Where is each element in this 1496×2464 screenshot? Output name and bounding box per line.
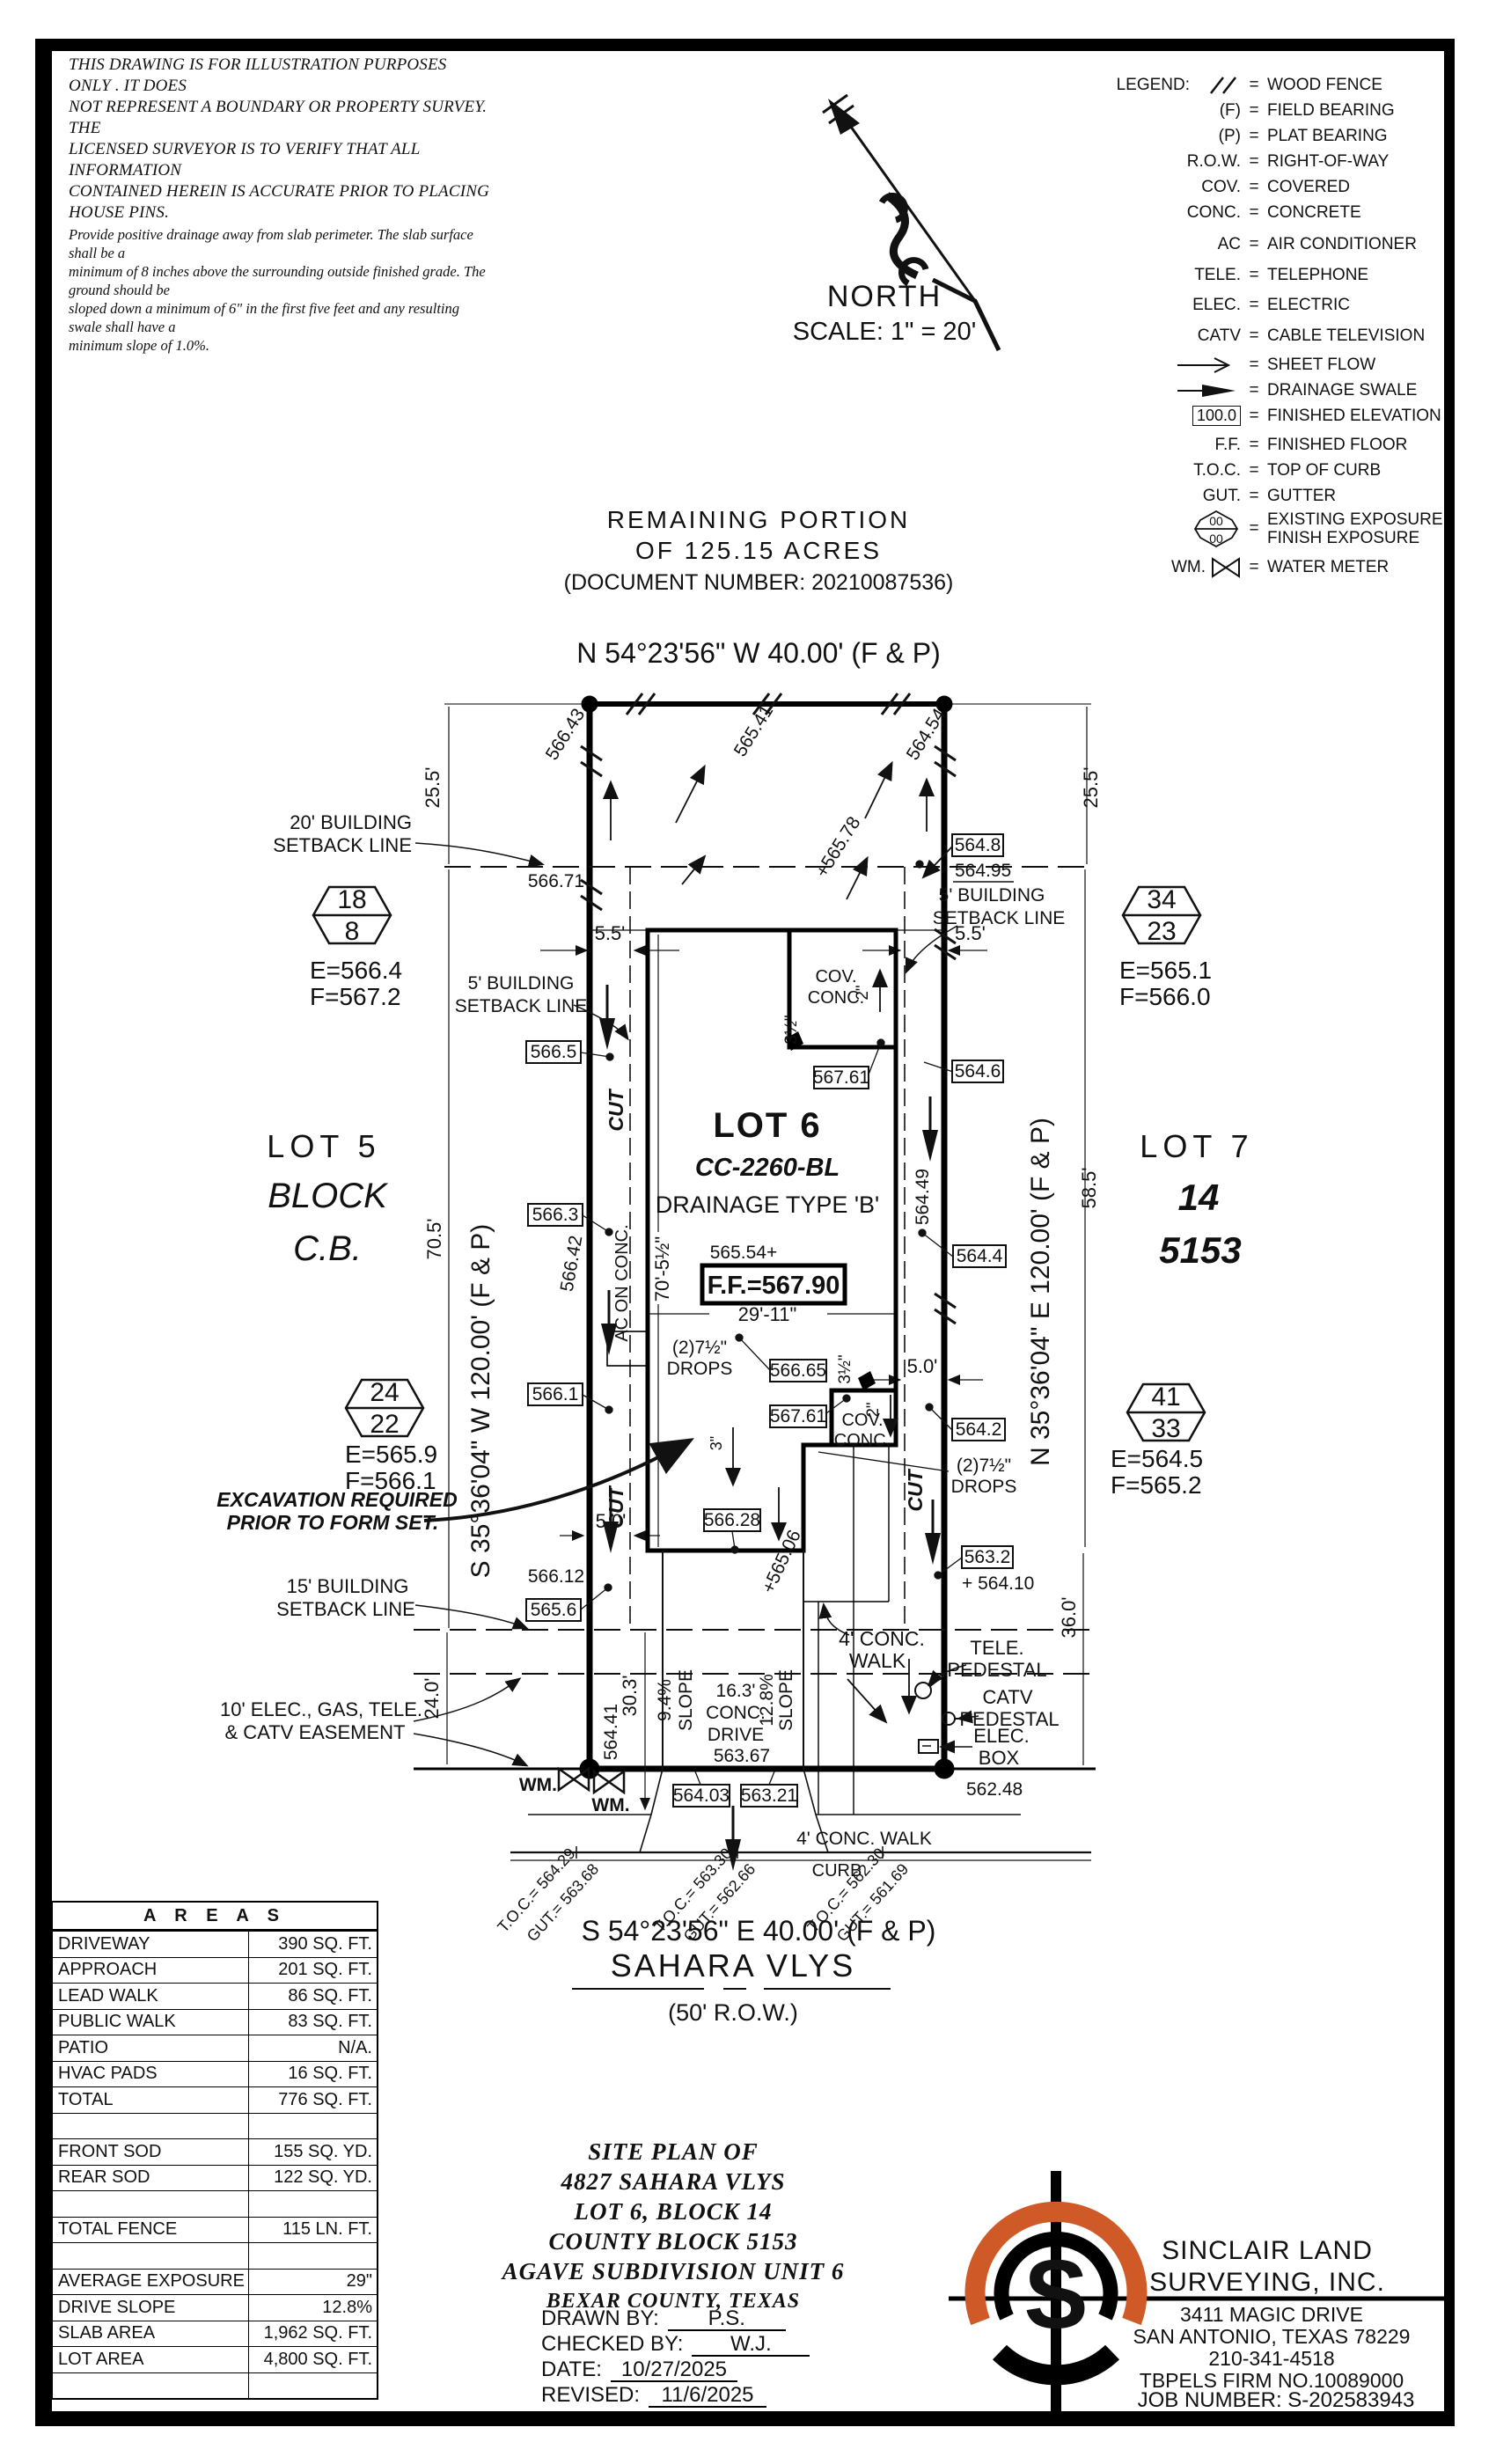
svg-text:41: 41 [1151,1382,1180,1412]
legend-symbol: ELEC. [1093,296,1241,315]
svg-text:SLOPE: SLOPE [776,1669,796,1731]
table-row: SLAB AREA1,962 SQ. FT. [53,2321,377,2347]
svg-text:566.42: 566.42 [557,1234,587,1293]
svg-text:566.43: 566.43 [542,705,590,764]
svg-text:DRIVE: DRIVE [708,1725,764,1745]
legend-symbol: (P) [1093,127,1241,146]
svg-text:33: 33 [1151,1414,1180,1443]
title-line: SITE PLAN OF [480,2137,867,2167]
title-block: SITE PLAN OF 4827 SAHARA VLYS LOT 6, BLO… [480,2137,867,2316]
svg-text:12.8%: 12.8% [757,1674,777,1727]
svg-text:PEDESTAL: PEDESTAL [947,1659,1046,1681]
table-row: TOTAL FENCE115 LN. FT. [53,2217,377,2243]
svg-text:564.8: 564.8 [955,835,1001,855]
svg-text:70.5': 70.5' [423,1218,445,1259]
street-name: SAHARA VLYS [611,1947,855,1984]
legend-symbol: WM. [1171,558,1206,577]
drawn-by-row: DRAWN BY:P.S. [541,2306,893,2331]
svg-text:9.4%: 9.4% [655,1679,675,1721]
exposure-hex-icon: 00 00 [1192,510,1241,548]
svg-text:3½": 3½" [782,1015,801,1044]
legend-symbol: (F) [1093,101,1241,121]
legend-label: FINISHED ELEVATION [1267,407,1441,426]
legend-title: LEGEND: [1117,76,1190,95]
svg-text:566.5: 566.5 [531,1042,577,1062]
table-row [53,2372,377,2399]
table-row: LEAD WALK86 SQ. FT. [53,1983,377,2009]
legend-symbol: GUT. [1093,487,1241,506]
svg-text:SETBACK LINE: SETBACK LINE [276,1598,415,1620]
svg-text:565.54+: 565.54+ [710,1243,778,1263]
table-row: TOTAL776 SQ. FT. [53,2086,377,2113]
svg-text:563.2: 563.2 [964,1547,1011,1567]
svg-text:BLOCK: BLOCK [268,1177,389,1215]
site-plan-sheet: NORTH SCALE: 1" = 20' REMAINING PORTION … [0,0,1496,2464]
svg-text:4' CONC.: 4' CONC. [839,1627,925,1650]
svg-text:TELE.: TELE. [970,1637,1023,1659]
sinclair-logo-icon: S [975,2171,1137,2416]
svg-text:& CATV EASEMENT: & CATV EASEMENT [225,1721,406,1743]
svg-text:15' BUILDING: 15' BUILDING [287,1575,409,1597]
title-line: LOT 6, BLOCK 14 [480,2196,867,2226]
svg-text:564.03: 564.03 [673,1786,730,1806]
legend-label: RIGHT-OF-WAY [1267,152,1389,172]
svg-text:567.61: 567.61 [770,1406,826,1426]
legend-symbol: COV. [1093,178,1241,197]
svg-text:E=566.4: E=566.4 [310,957,402,984]
sheet-flow-icon [1176,356,1241,374]
disclaimer-line: LICENSED SURVEYOR IS TO VERIFY THAT ALL … [69,139,491,181]
svg-text:5' BUILDING: 5' BUILDING [939,885,1045,906]
svg-text:F=567.2: F=567.2 [310,983,401,1010]
legend-label: COVERED [1267,178,1350,197]
svg-text:3": 3" [708,1436,725,1450]
svg-text:SETBACK LINE: SETBACK LINE [455,996,588,1016]
svg-text:CUT: CUT [904,1468,927,1511]
svg-text:(2)7½": (2)7½" [957,1456,1011,1476]
legend-label: FINISH EXPOSURE [1267,529,1443,547]
svg-text:COV.: COV. [815,967,856,986]
svg-text:AC ON CONC.: AC ON CONC. [612,1224,632,1341]
legend-label: ELECTRIC [1267,296,1350,315]
svg-text:564.2: 564.2 [956,1419,1002,1440]
bottom-bearing: S 54°23'56" E 40.00' (F & P) [582,1915,936,1947]
svg-text:OF 125.15 ACRES: OF 125.15 ACRES [635,537,882,564]
legend-label: GUTTER [1267,487,1336,506]
svg-text:30.3': 30.3' [619,1675,641,1716]
svg-text:565.41: 565.41 [730,701,778,760]
table-row [53,2242,377,2269]
svg-text:C.B.: C.B. [293,1229,362,1268]
north-label: NORTH [827,280,942,313]
svg-text:566.12: 566.12 [528,1566,584,1587]
water-meter-icon [1211,557,1241,578]
legend-symbol: R.O.W. [1093,152,1241,172]
svg-text:70'-5½": 70'-5½" [651,1236,673,1302]
svg-text:3½": 3½" [836,1354,854,1383]
top-bearing: N 54°23'56" W 40.00' (F & P) [576,637,940,669]
lot-labels: LOT 5 BLOCK C.B. LOT 7 14 5153 LOT 6 CC-… [267,1106,1253,1303]
disclaimer-line: NOT REPRESENT A BOUNDARY OR PROPERTY SUR… [69,97,491,139]
svg-text:DROPS: DROPS [667,1359,733,1379]
svg-text:4' CONC. WALK: 4' CONC. WALK [796,1829,932,1849]
svg-text:CATV: CATV [982,1686,1032,1708]
wood-fence-icon [1204,76,1241,95]
disclaimer-note: THIS DRAWING IS FOR ILLUSTRATION PURPOSE… [69,55,491,355]
drainage-note-line: minimum slope of 1.0%. [69,336,491,355]
svg-text:S: S [1023,2240,1088,2349]
legend-symbol: CATV [1093,326,1241,346]
svg-text:24.0': 24.0' [421,1677,443,1719]
firm-name: SINCLAIR LAND SURVEYING, INC. [1135,2235,1399,2299]
svg-text:565.6: 565.6 [531,1600,577,1620]
svg-text:F=565.2: F=565.2 [1111,1471,1202,1499]
svg-text:566.3: 566.3 [532,1205,579,1225]
svg-text:00: 00 [1209,514,1223,528]
setback-labels: 20' BUILDING SETBACK LINE 5' BUILDING SE… [220,811,1065,1765]
legend-label: WATER METER [1267,558,1389,577]
date-row: DATE:10/27/2025 [541,2357,893,2382]
disclaimer-line: THIS DRAWING IS FOR ILLUSTRATION PURPOSE… [69,55,491,97]
svg-text:CONC.: CONC. [834,1431,891,1450]
toc-gut-labels: T.O.C.= 564.29 GUT.= 563.68 T.O.C.= 563.… [494,1844,912,1945]
disclaimer-line: CONTAINED HEREIN IS ACCURATE PRIOR TO PL… [69,181,491,224]
legend-symbol: F.F. [1093,436,1241,455]
svg-text:5.0': 5.0' [907,1355,938,1377]
legend-label: CONCRETE [1267,203,1361,223]
svg-text:18: 18 [337,885,366,914]
title-line: 4827 SAHARA VLYS [480,2167,867,2196]
svg-text:+565.78: +565.78 [811,813,864,881]
right-bearing: N 35°36'04" E 120.00' (F & P) [1026,1118,1055,1466]
svg-text:WM.: WM. [591,1795,629,1815]
left-bearing: S 35°36'04" W 120.00' (F & P) [466,1224,495,1579]
svg-text:567.61: 567.61 [813,1067,869,1088]
legend-label: DRAINAGE SWALE [1267,381,1417,400]
legend-symbol: TELE. [1093,266,1241,285]
svg-text:23: 23 [1147,917,1176,946]
svg-text:WM.: WM. [519,1775,557,1795]
job-number: JOB NUMBER: S-202583943 [1126,2388,1426,2413]
table-row: DRIVE SLOPE12.8% [53,2294,377,2321]
svg-text:ELEC.: ELEC. [973,1725,1030,1747]
table-row: APPROACH201 SQ. FT. [53,1957,377,1984]
svg-text:2": 2" [864,1402,883,1417]
table-row [53,2113,377,2139]
legend-symbol: AC [1093,235,1241,254]
areas-table: A R E A S DRIVEWAY390 SQ. FT. APPROACH20… [51,1901,378,2400]
svg-text:5.5': 5.5' [595,922,626,944]
legend-label: SHEET FLOW [1267,356,1375,375]
svg-text:566.28: 566.28 [704,1510,760,1530]
svg-text:5' BUILDING: 5' BUILDING [468,973,575,994]
svg-text:2": 2" [854,985,872,1000]
table-row: AVERAGE EXPOSURE29" [53,2269,377,2295]
svg-text:E=565.9: E=565.9 [345,1441,437,1468]
areas-table-title: A R E A S [53,1903,377,1931]
table-row: PATION/A. [53,2035,377,2061]
legend-label: WOOD FENCE [1267,76,1382,95]
table-row: PUBLIC WALK83 SQ. FT. [53,2009,377,2035]
drainage-swale-icon [1176,382,1241,400]
revised-row: REVISED:11/6/2025 [541,2382,893,2408]
svg-text:SETBACK LINE: SETBACK LINE [273,834,412,856]
svg-text:PRIOR TO FORM SET.: PRIOR TO FORM SET. [227,1511,439,1534]
drainage-note-line: sloped down a minimum of 6" in the first… [69,299,491,336]
table-row: FRONT SOD155 SQ. YD. [53,2138,377,2165]
svg-text:CUT: CUT [605,1485,627,1528]
svg-text:14: 14 [1178,1177,1220,1218]
svg-text:(2)7½": (2)7½" [672,1338,727,1358]
svg-text:24: 24 [370,1378,399,1407]
checked-by-row: CHECKED BY:W.J. [541,2331,893,2357]
table-row [53,2190,377,2217]
svg-text:+ 564.10: + 564.10 [962,1573,1034,1594]
remaining-portion-note: REMAINING PORTION OF 125.15 ACRES (DOCUM… [564,506,954,595]
svg-text:CUT: CUT [605,1088,627,1131]
table-row: LOT AREA4,800 SQ. FT. [53,2346,377,2372]
svg-text:564.49: 564.49 [913,1169,933,1225]
lot-boundary [414,696,1096,1778]
svg-text:29'-11": 29'-11" [738,1303,797,1325]
svg-text:SLOPE: SLOPE [676,1669,696,1731]
svg-text:LOT 6: LOT 6 [713,1106,821,1145]
table-row: REAR SOD122 SQ. YD. [53,2165,377,2191]
svg-text:EXCAVATION REQUIRED: EXCAVATION REQUIRED [216,1488,457,1511]
svg-text:WALK: WALK [849,1649,906,1672]
wood-fence-hashes [581,693,956,1324]
firm-address: 3411 MAGIC DRIVE SAN ANTONIO, TEXAS 7822… [1126,2304,1417,2392]
svg-text:566.65: 566.65 [770,1360,826,1381]
legend-symbol: T.O.C. [1093,461,1241,480]
legend-symbol: CONC. [1093,203,1241,223]
svg-text:F=566.0: F=566.0 [1119,983,1211,1010]
legend-label: TOP OF CURB [1267,461,1381,480]
legend-label: TELEPHONE [1267,266,1368,285]
svg-text:562.48: 562.48 [966,1779,1023,1800]
svg-text:34: 34 [1147,885,1176,914]
svg-text:563.21: 563.21 [741,1786,797,1806]
legend-label: PLAT BEARING [1267,127,1388,146]
svg-text:564.6: 564.6 [955,1061,1001,1082]
title-line: AGAVE SUBDIVISION UNIT 6 [480,2256,867,2286]
legend-label: CABLE TELEVISION [1267,326,1425,346]
svg-text:CC-2260-BL: CC-2260-BL [695,1154,840,1182]
svg-text:10' ELEC., GAS, TELE.: 10' ELEC., GAS, TELE. [220,1698,422,1720]
svg-text:E=565.1: E=565.1 [1119,957,1212,984]
svg-text:566.71: 566.71 [528,871,584,891]
svg-text:(DOCUMENT NUMBER: 20210087536): (DOCUMENT NUMBER: 20210087536) [564,570,954,595]
svg-text:16.3': 16.3' [716,1681,756,1701]
utility-symbols: TELE. PEDESTAL CATV PEDESTAL ELEC. BOX [915,1637,1060,1769]
svg-text:8: 8 [345,917,360,946]
svg-text:563.67: 563.67 [714,1746,770,1766]
svg-text:BOX: BOX [979,1747,1020,1769]
drawing-fields: DRAWN BY:P.S. CHECKED BY:W.J. DATE:10/27… [541,2306,893,2408]
svg-text:E=564.5: E=564.5 [1111,1445,1203,1472]
svg-text:564.41: 564.41 [601,1704,621,1760]
svg-text:DROPS: DROPS [951,1477,1017,1497]
svg-text:36.0': 36.0' [1058,1596,1080,1638]
svg-text:REMAINING PORTION: REMAINING PORTION [607,506,911,533]
svg-text:566.1: 566.1 [532,1384,579,1404]
street-row: (50' R.O.W.) [668,1999,798,2026]
svg-text:LOT 7: LOT 7 [1140,1128,1253,1164]
drainage-note-line: Provide positive drainage away from slab… [69,225,491,262]
svg-text:00: 00 [1209,532,1223,546]
svg-text:564.95: 564.95 [955,861,1011,881]
svg-text:+565.06: +565.06 [759,1527,805,1596]
svg-text:25.5': 25.5' [1080,766,1102,808]
title-line: COUNTY BLOCK 5153 [480,2226,867,2256]
svg-text:58.5': 58.5' [1078,1167,1100,1208]
finished-elevation-icon: 100.0 [1192,406,1241,426]
svg-text:22: 22 [370,1410,399,1439]
legend-label: FINISHED FLOOR [1267,436,1407,455]
svg-text:564.4: 564.4 [957,1246,1003,1266]
legend-label: AIR CONDITIONER [1267,235,1417,254]
legend-row-wood-fence: LEGEND: =WOOD FENCE [1093,72,1454,98]
legend-label: EXISTING EXPOSURE [1267,510,1443,529]
svg-text:F.F.=567.90: F.F.=567.90 [708,1272,840,1300]
legend-label: FIELD BEARING [1267,101,1395,121]
drainage-note-line: minimum of 8 inches above the surroundin… [69,262,491,299]
svg-text:25.5': 25.5' [422,766,444,808]
svg-text:LOT 5: LOT 5 [267,1128,380,1164]
table-row: DRIVEWAY390 SQ. FT. [53,1931,377,1957]
svg-text:5153: 5153 [1159,1229,1241,1271]
legend: LEGEND: =WOOD FENCE (F)=FIELD BEARING (P… [1093,72,1454,580]
svg-text:DRAINAGE TYPE 'B': DRAINAGE TYPE 'B' [656,1192,879,1218]
svg-text:SETBACK LINE: SETBACK LINE [933,908,1066,928]
scale-label: SCALE: 1" = 20' [793,318,976,346]
svg-text:20' BUILDING: 20' BUILDING [290,811,412,833]
table-row: HVAC PADS16 SQ. FT. [53,2061,377,2087]
